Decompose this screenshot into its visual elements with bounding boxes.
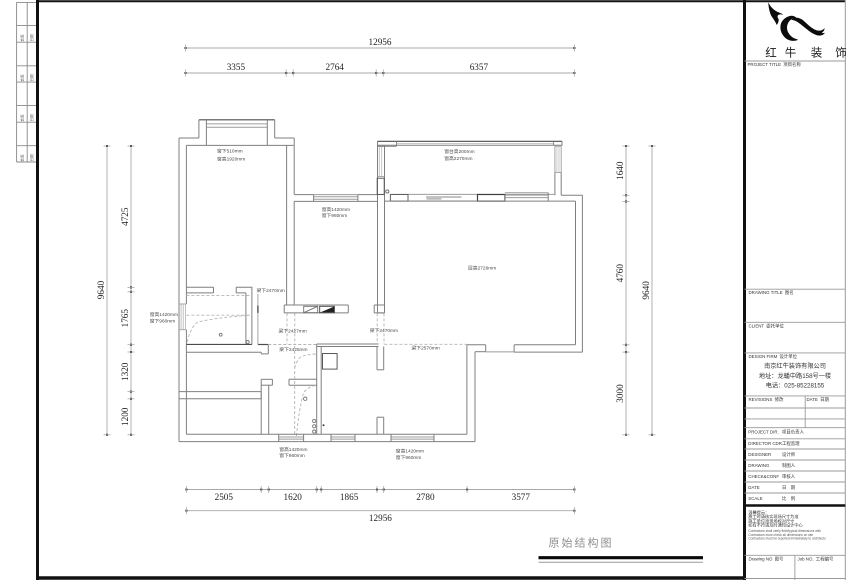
svg-text:电话：025-85228155: 电话：025-85228155 [766,382,825,390]
svg-text:制图人: 制图人 [782,462,796,469]
svg-text:PROJECT DIR.: PROJECT DIR. [748,429,778,434]
svg-text:日期: 日期 [29,74,34,82]
svg-text:9640: 9640 [641,281,651,300]
svg-text:4760: 4760 [615,264,625,283]
svg-text:窗下960mm: 窗下960mm [150,317,176,324]
svg-text:会签: 会签 [20,34,25,42]
svg-text:日期: 日期 [29,114,34,122]
svg-text:会签: 会签 [20,114,25,122]
svg-text:窗下960mm: 窗下960mm [279,452,305,459]
svg-text:1620: 1620 [284,492,303,502]
svg-text:饰: 饰 [835,46,847,60]
svg-text:9640: 9640 [96,280,106,299]
svg-text:PROJECT TITLE 项目名称: PROJECT TITLE 项目名称 [748,61,802,68]
svg-text:比 例: 比 例 [782,495,796,502]
svg-text:如有不符请及时通知设计中心: 如有不符请及时通知设计中心 [748,522,803,529]
svg-text:REVISIONS 修改: REVISIONS 修改 [749,396,784,403]
svg-text:DATE: DATE [748,485,759,490]
svg-text:梁下2425mm: 梁下2425mm [279,346,307,353]
svg-text:日期: 日期 [29,34,34,42]
svg-text:2780: 2780 [416,492,435,502]
svg-text:牛: 牛 [785,46,797,60]
svg-text:南京红牛装饰有限公司: 南京红牛装饰有限公司 [764,362,826,370]
svg-text:项目负责人: 项目负责人 [782,428,805,435]
svg-text:1200: 1200 [120,407,130,426]
svg-text:2764: 2764 [326,62,345,72]
svg-text:窗高1420mm: 窗高1420mm [396,448,424,455]
svg-text:1865: 1865 [340,492,359,502]
svg-text:梁下2427mm: 梁下2427mm [279,328,307,335]
svg-text:窗下960mm: 窗下960mm [396,454,422,461]
svg-text:窗台高200mm: 窗台高200mm [444,148,474,155]
svg-text:4725: 4725 [120,207,130,226]
svg-text:层高2726mm: 层高2726mm [468,264,496,271]
svg-text:设计师: 设计师 [782,451,796,458]
svg-text:梁下2570mm: 梁下2570mm [412,345,440,352]
svg-text:梁下2470mm: 梁下2470mm [257,287,285,294]
svg-text:原始结构图: 原始结构图 [549,536,614,550]
svg-text:6357: 6357 [470,62,489,72]
svg-text:日期: 日期 [29,154,34,162]
svg-text:窗高1920mm: 窗高1920mm [217,156,245,163]
svg-text:窗高1420mm: 窗高1420mm [279,446,307,453]
svg-text:Contractors must be reported i: Contractors must be reported immediately… [748,537,826,541]
svg-text:会签: 会签 [20,154,25,162]
svg-text:窗高1420mm: 窗高1420mm [322,206,350,213]
svg-text:审核人: 审核人 [782,473,796,480]
svg-text:窗高2270mm: 窗高2270mm [444,155,472,162]
svg-text:3355: 3355 [227,62,246,72]
svg-text:2505: 2505 [215,492,234,502]
svg-text:DESIGN FIRM 设计单位: DESIGN FIRM 设计单位 [749,353,798,360]
svg-text:3577: 3577 [512,492,531,502]
svg-text:1640: 1640 [615,161,625,180]
svg-text:窗高1420mm: 窗高1420mm [150,311,178,318]
svg-text:1765: 1765 [120,309,130,328]
svg-text:装: 装 [811,47,823,60]
svg-text:3000: 3000 [615,384,625,403]
svg-text:DRAWING TITLE 图名: DRAWING TITLE 图名 [749,289,794,296]
svg-text:DRAWING: DRAWING [748,463,770,468]
svg-text:Job NO. 工程编号: Job NO. 工程编号 [798,556,834,563]
svg-text:1320: 1320 [120,362,130,381]
svg-text:地址：龙蟠中路158号一楼: 地址：龙蟠中路158号一楼 [759,372,831,380]
svg-text:12956: 12956 [369,37,392,47]
svg-text:工程监理: 工程监理 [782,440,800,447]
svg-text:会签: 会签 [20,74,25,82]
svg-text:红: 红 [765,47,777,60]
svg-text:窗下960mm: 窗下960mm [322,212,348,219]
svg-text:窗下510mm: 窗下510mm [217,148,243,155]
svg-text:SCALE: SCALE [748,496,762,501]
svg-text:CLIENT 委托单位: CLIENT 委托单位 [749,322,785,329]
svg-text:DESIGNER: DESIGNER [748,452,771,457]
svg-text:CHECK&CONF: CHECK&CONF [748,474,779,479]
svg-text:DIRECTOR CDR: DIRECTOR CDR [748,441,782,446]
svg-text:梁下2470mm: 梁下2470mm [370,327,398,334]
svg-text:12956: 12956 [369,513,392,523]
